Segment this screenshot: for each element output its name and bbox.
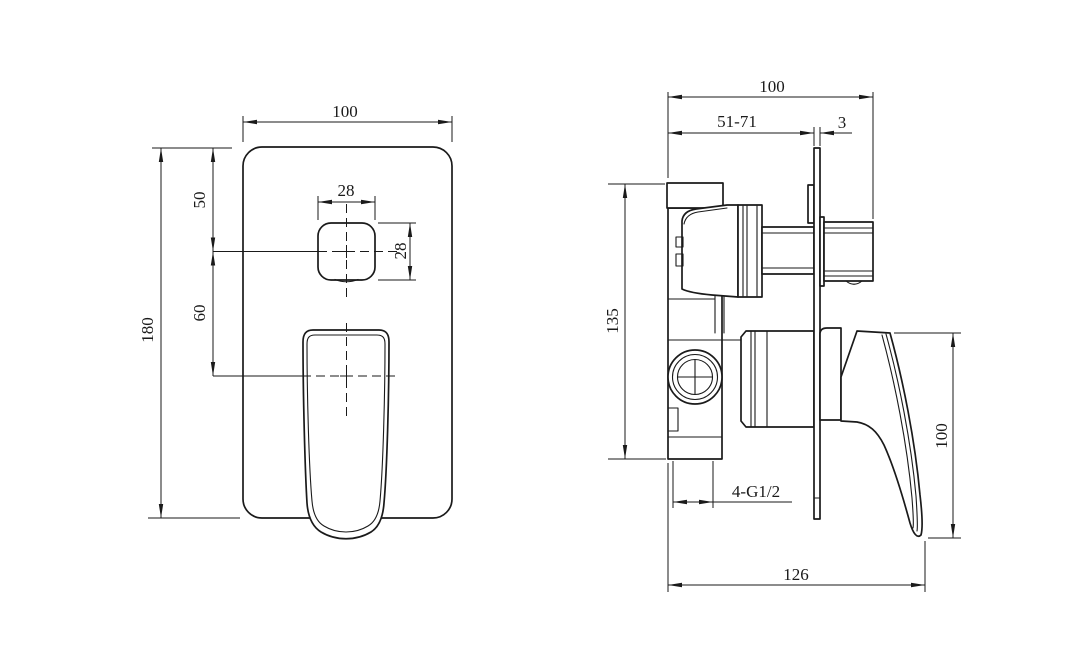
top-port-block — [667, 183, 723, 208]
dim-overall-length: 126 — [668, 463, 925, 592]
lever-handle-side — [841, 331, 922, 536]
dim-handle-height-label: 100 — [932, 423, 951, 449]
dim-body-height: 135 — [603, 184, 666, 459]
dim-plate-width: 100 — [243, 102, 452, 142]
diverter-stem — [762, 227, 814, 274]
diverter-ring-section — [738, 205, 762, 297]
drawing-sheet: 100 180 50 60 28 — [0, 0, 1079, 647]
technical-drawing: 100 180 50 60 28 — [0, 0, 1079, 647]
dim-port-thread: 4-G1/2 — [673, 461, 792, 508]
dim-overall-depth-label: 100 — [759, 77, 785, 96]
wall-plate-side — [814, 148, 820, 519]
dim-installation-depth-label: 51-71 — [717, 112, 757, 131]
dim-plate-height: 180 — [138, 148, 240, 518]
dim-button-to-handle-label: 60 — [190, 305, 209, 322]
dim-plate-thickness-label: 3 — [838, 113, 847, 132]
dim-plate-thickness: 3 — [820, 113, 852, 133]
mounting-tab — [808, 185, 814, 223]
dim-top-to-button-label: 50 — [190, 192, 209, 209]
diverter-cartridge-side — [682, 205, 738, 297]
dim-button-height-label: 28 — [391, 243, 410, 260]
inlet-port-side — [668, 350, 722, 404]
dim-top-to-button: 50 — [190, 148, 213, 252]
mixer-cartridge-side — [741, 331, 814, 427]
dim-plate-height-label: 180 — [138, 317, 157, 343]
side-view: 100 51-71 3 135 4-G1/2 — [603, 77, 961, 592]
dim-port-thread-label: 4-G1/2 — [732, 482, 780, 501]
lever-handle-front — [303, 330, 389, 539]
dim-plate-width-label: 100 — [332, 102, 358, 121]
dim-button-to-handle: 60 — [190, 252, 213, 377]
dim-button-width-label: 28 — [338, 181, 355, 200]
handle-hub-side — [820, 328, 841, 420]
front-view: 100 180 50 60 28 — [138, 102, 452, 539]
diverter-button-side — [824, 222, 873, 281]
dim-body-height-label: 135 — [603, 308, 622, 334]
dim-installation-depth: 51-71 — [668, 112, 820, 146]
dim-overall-length-label: 126 — [783, 565, 809, 584]
